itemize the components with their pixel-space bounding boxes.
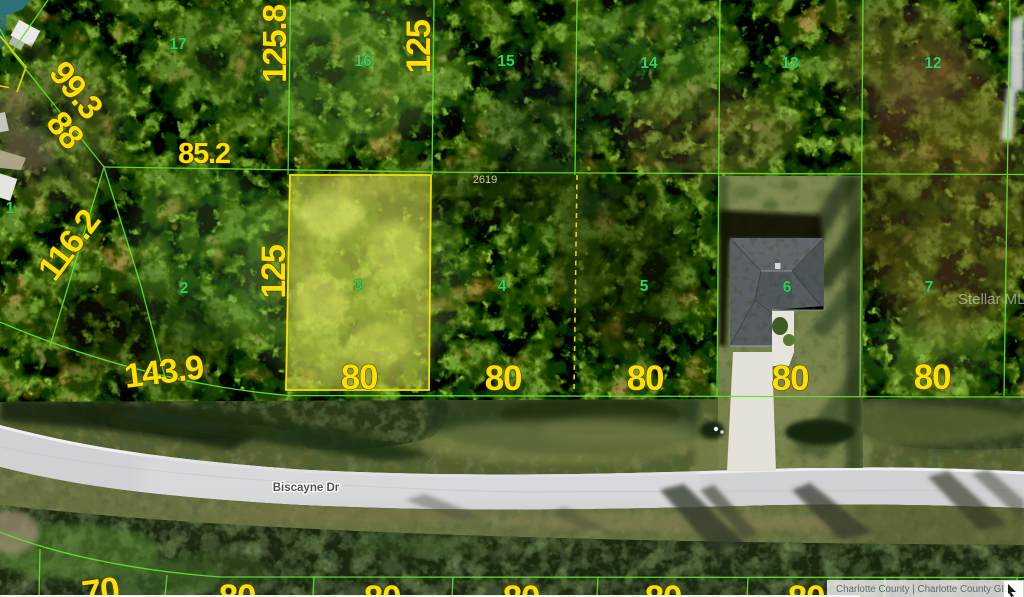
svg-text:7: 7 (925, 279, 934, 296)
svg-text:13: 13 (781, 55, 799, 72)
svg-text:14: 14 (640, 55, 658, 72)
svg-text:1: 1 (6, 200, 15, 217)
svg-text:85.2: 85.2 (178, 138, 230, 170)
svg-text:17: 17 (169, 36, 186, 53)
svg-text:80: 80 (341, 358, 378, 397)
svg-text:4: 4 (498, 278, 507, 295)
svg-text:125: 125 (255, 245, 293, 298)
svg-text:80: 80 (914, 358, 951, 397)
svg-text:70: 70 (80, 570, 122, 597)
svg-text:Charlotte County | Charlotte C: Charlotte County | Charlotte County GIS (836, 584, 1011, 595)
svg-text:12: 12 (924, 55, 941, 72)
svg-text:80: 80 (219, 578, 256, 597)
svg-text:16: 16 (354, 53, 372, 70)
svg-text:Stellar MLS: Stellar MLS (958, 291, 1024, 308)
svg-text:6: 6 (783, 279, 792, 296)
svg-text:80: 80 (645, 579, 682, 597)
svg-text:15: 15 (497, 53, 515, 70)
svg-text:125: 125 (400, 20, 438, 73)
svg-text:80: 80 (788, 579, 825, 597)
svg-text:125.8: 125.8 (257, 5, 294, 83)
svg-text:2619: 2619 (473, 174, 497, 186)
svg-text:80: 80 (772, 359, 809, 398)
svg-text:80: 80 (364, 579, 401, 597)
svg-text:80: 80 (627, 359, 664, 398)
svg-text:Biscayne Dr: Biscayne Dr (273, 482, 340, 494)
svg-text:2: 2 (180, 280, 189, 297)
svg-text:80: 80 (485, 359, 522, 398)
svg-text:80: 80 (503, 579, 540, 597)
svg-text:3: 3 (354, 277, 363, 294)
svg-text:5: 5 (640, 278, 649, 295)
